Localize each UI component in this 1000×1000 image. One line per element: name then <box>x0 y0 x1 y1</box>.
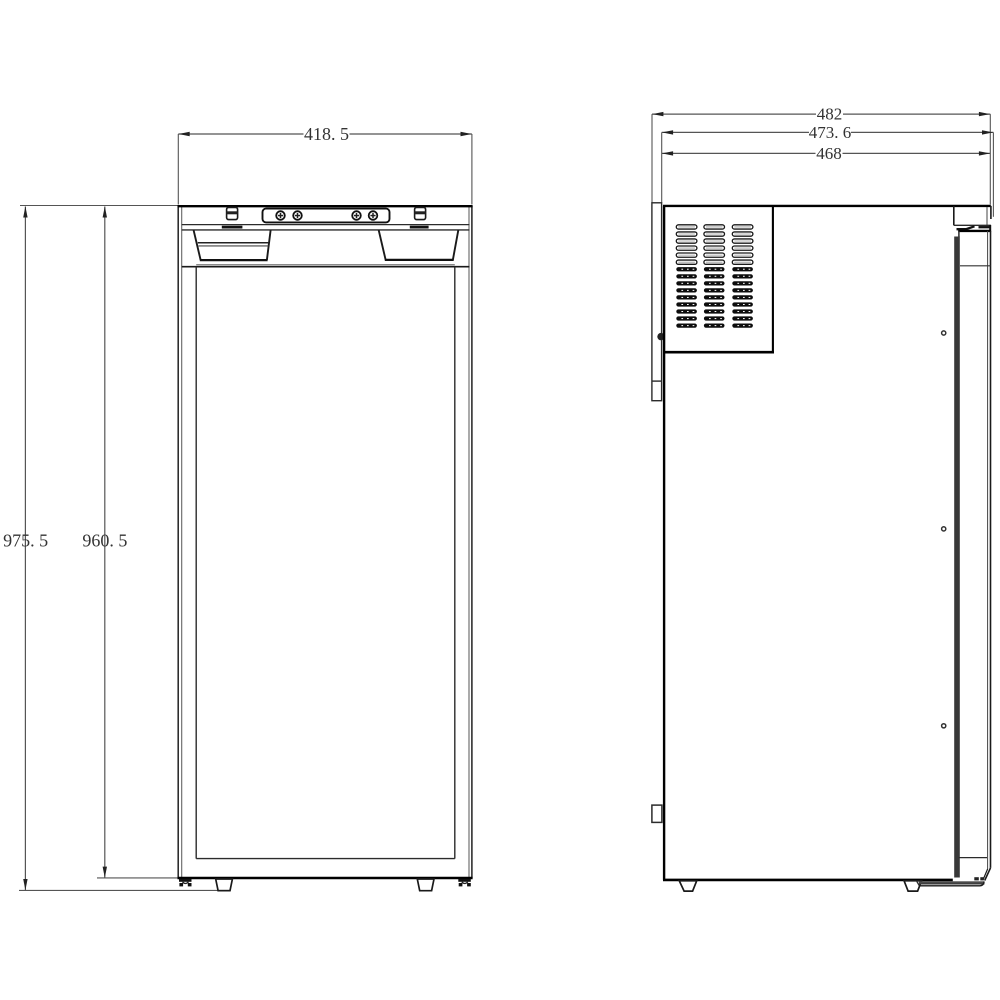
svg-text:975. 5: 975. 5 <box>3 530 48 550</box>
svg-text:473. 6: 473. 6 <box>809 123 852 142</box>
svg-text:482: 482 <box>817 105 843 124</box>
svg-text:418. 5: 418. 5 <box>304 124 349 144</box>
svg-text:960. 5: 960. 5 <box>82 530 127 550</box>
svg-text:468: 468 <box>816 144 842 163</box>
